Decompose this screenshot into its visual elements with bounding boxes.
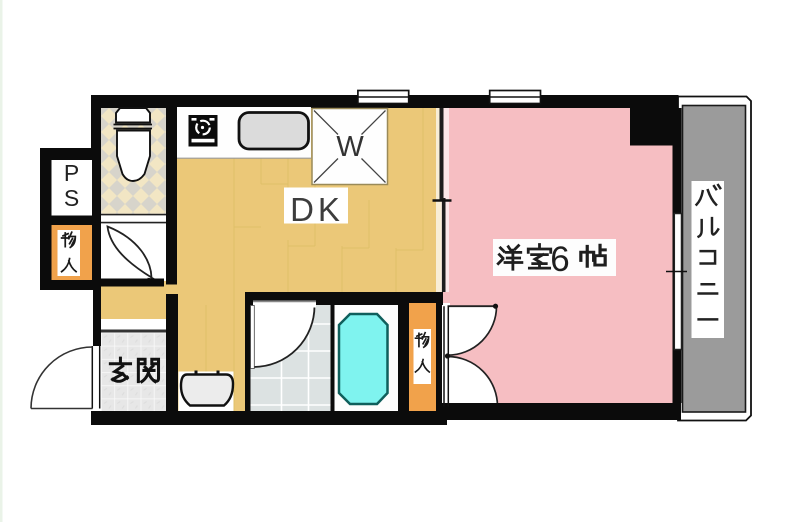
svg-text:P: P [64,160,79,186]
svg-text:S: S [64,185,79,211]
svg-text:6: 6 [550,240,569,279]
svg-text:DK: DK [290,191,344,228]
svg-text:W: W [336,131,364,163]
